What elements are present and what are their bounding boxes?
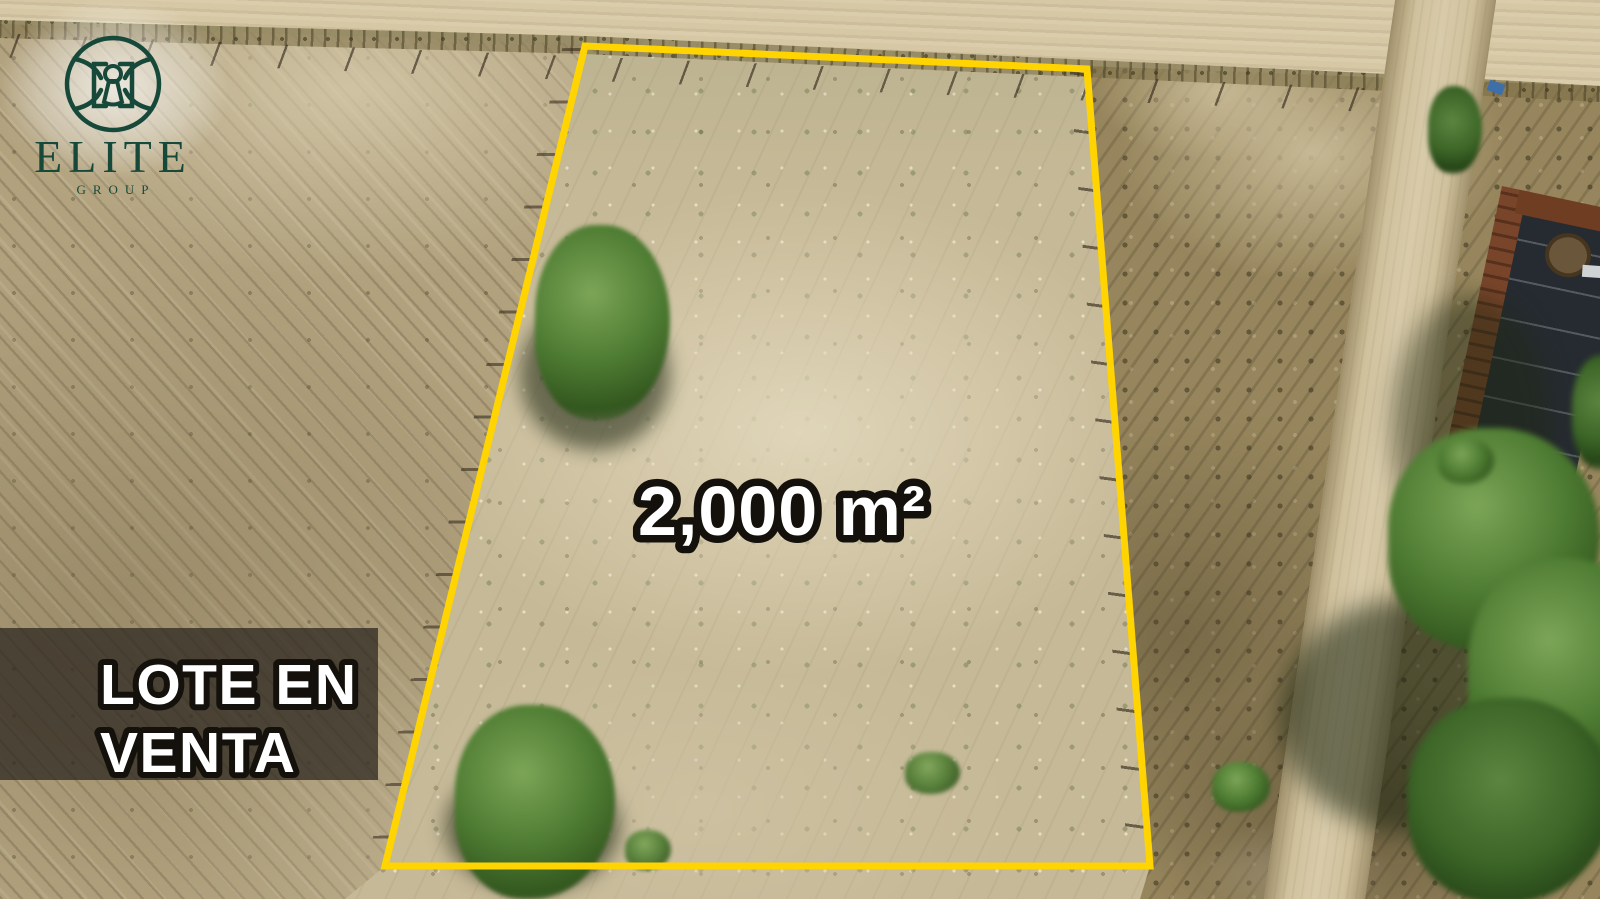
brand-name: ELITE (34, 131, 192, 182)
sale-banner (0, 628, 378, 780)
keyhole-emblem-icon (67, 38, 159, 130)
brand-logo: ELITE GROUP (28, 16, 204, 206)
building-light-panel (1582, 265, 1600, 279)
brand-subtitle: GROUP (76, 182, 155, 197)
aerial-lot-photo: 2,000 m² LOTE EN VENTA ELITE GROUP (0, 0, 1600, 899)
tree-right (1408, 698, 1600, 899)
